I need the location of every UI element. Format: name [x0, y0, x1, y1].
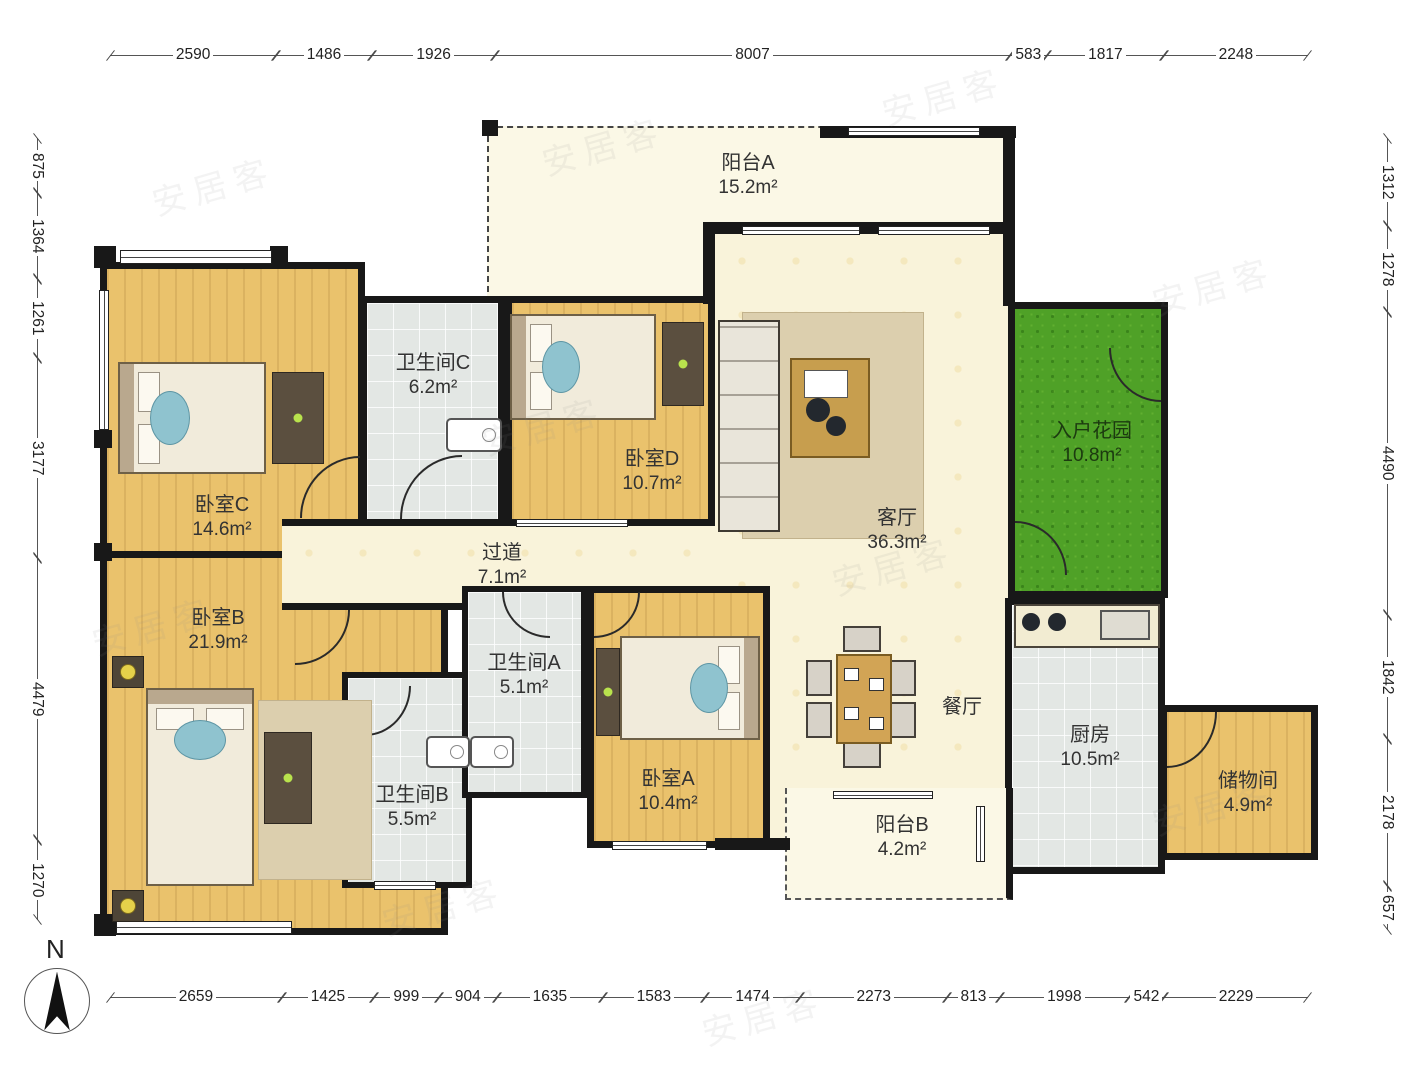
dimension-segment: 999 [374, 988, 439, 1006]
dimension-value: 4479 [28, 679, 46, 719]
watermark-text: 安居客 [146, 144, 281, 226]
room-name: 阳台B [875, 814, 928, 836]
dimension-segment: 1261 [28, 279, 46, 358]
dimension-segment: 8007 [495, 46, 1009, 64]
headboard [512, 316, 526, 418]
watermark-text: 安居客 [876, 54, 1011, 136]
dimension-value: 1635 [530, 988, 570, 1006]
dimension-segment: 1842 [1378, 615, 1396, 739]
dimension-segment: 583 [1010, 46, 1047, 64]
label-kitchen: 厨房 10.5m² [1060, 722, 1119, 773]
dimension-segment: 2229 [1164, 988, 1308, 1006]
label-hallway: 过道 7.1m² [478, 540, 527, 591]
compass-north-label: N [46, 934, 65, 965]
window [878, 226, 990, 235]
window [742, 226, 860, 235]
label-storage: 储物间 4.9m² [1218, 768, 1278, 819]
dimension-value: 3177 [28, 438, 46, 478]
window [374, 881, 436, 890]
dimension-segment: 4479 [28, 558, 46, 840]
room-area: 5.1m² [487, 676, 560, 701]
dimension-value: 1817 [1085, 46, 1125, 64]
window [833, 791, 933, 799]
wardrobe [596, 648, 620, 736]
dining-chair [843, 742, 881, 768]
wall-segment [1003, 126, 1015, 306]
kettle [806, 398, 830, 422]
room-area: 15.2m² [718, 176, 777, 201]
bed-bedroom-c [118, 362, 266, 474]
blanket [150, 391, 190, 445]
dimension-value: 1278 [1378, 249, 1396, 289]
room-name: 阳台A [721, 152, 774, 174]
wall-pillar [94, 430, 112, 448]
room-name: 卧室B [191, 607, 244, 629]
dimension-segment: 542 [1129, 988, 1164, 1006]
compass-arrow-icon [44, 972, 70, 1031]
dimension-segment: 1635 [497, 988, 603, 1006]
dimension-value: 904 [452, 988, 484, 1006]
room-name: 客厅 [877, 507, 917, 529]
label-balcony-a: 阳台A 15.2m² [718, 150, 777, 201]
dimension-value: 1842 [1378, 657, 1396, 697]
label-bedroom-c: 卧室C 14.6m² [192, 492, 251, 543]
wall-pillar [94, 543, 112, 561]
window [612, 841, 707, 850]
wall-segment [715, 838, 790, 850]
label-balcony-b: 阳台B 4.2m² [875, 812, 928, 863]
stove-burner [1022, 613, 1040, 631]
dimension-value: 2273 [854, 988, 894, 1006]
dimension-value: 999 [390, 988, 422, 1006]
room-name: 卫生间C [396, 352, 470, 374]
dimension-segment: 1926 [372, 46, 496, 64]
label-bathroom-b: 卫生间B 5.5m² [375, 782, 448, 833]
room-area: 36.3m² [867, 531, 926, 556]
headboard [120, 364, 134, 472]
dimension-value: 1474 [732, 988, 772, 1006]
room-area: 4.9m² [1218, 794, 1278, 819]
washing-machine [446, 418, 502, 452]
dimension-segment: 1583 [603, 988, 705, 1006]
room-name: 储物间 [1218, 770, 1278, 792]
dimension-line-top: 259014861926800758318172248 [110, 46, 1308, 64]
dimension-value: 1261 [28, 298, 46, 338]
room-area: 10.4m² [638, 792, 697, 817]
dining-chair [890, 660, 916, 696]
room-name: 卧室D [625, 448, 679, 470]
room-name: 餐厅 [942, 696, 982, 718]
bed-bedroom-a [620, 636, 760, 740]
compass-icon [24, 968, 90, 1034]
dimension-value: 1270 [28, 860, 46, 900]
dining-chair [806, 702, 832, 738]
plate [844, 668, 859, 681]
wardrobe [264, 732, 312, 824]
kitchen-sink [1100, 610, 1150, 640]
dimension-value: 1425 [308, 988, 348, 1006]
nightstand-lamp [112, 656, 144, 688]
dimension-value: 1926 [413, 46, 453, 64]
dimension-segment: 2248 [1164, 46, 1308, 64]
blanket [542, 341, 580, 393]
dimension-segment: 1270 [28, 840, 46, 920]
room-name: 入户花园 [1052, 420, 1132, 442]
dimension-segment: 1474 [705, 988, 800, 1006]
room-area: 4.2m² [875, 838, 928, 863]
label-bedroom-a: 卧室A 10.4m² [638, 766, 697, 817]
dimension-segment: 2590 [110, 46, 276, 64]
dimension-segment: 4490 [1378, 312, 1396, 614]
stove-burner [1048, 613, 1066, 631]
room-name: 过道 [482, 542, 522, 564]
tea-set [804, 370, 848, 398]
window [120, 250, 272, 264]
dining-chair [843, 626, 881, 652]
blanket [174, 720, 226, 760]
label-bedroom-b: 卧室B 21.9m² [188, 605, 247, 656]
label-dining: 餐厅 [942, 694, 982, 720]
dimension-value: 1998 [1044, 988, 1084, 1006]
plate [869, 717, 884, 730]
dimension-value: 542 [1130, 988, 1162, 1006]
plate [844, 707, 859, 720]
dimension-segment: 657 [1378, 886, 1396, 930]
dimension-segment: 813 [947, 988, 1000, 1006]
room-area: 6.2m² [396, 376, 470, 401]
sofa [718, 320, 780, 532]
bed-bedroom-b [146, 688, 254, 886]
label-living: 客厅 36.3m² [867, 505, 926, 556]
wardrobe [272, 372, 324, 464]
room-area: 10.7m² [622, 472, 681, 497]
dimension-value: 1312 [1378, 162, 1396, 202]
floor-plan-page: { "watermark": "安居客", "compass": { "nort… [0, 0, 1420, 1065]
wall-pillar [270, 246, 288, 264]
window [976, 806, 985, 862]
dimension-value: 2229 [1216, 988, 1256, 1006]
window [516, 519, 628, 527]
room-area: 10.8m² [1052, 444, 1132, 469]
dimension-value: 657 [1378, 892, 1396, 924]
room-name: 卫生间A [487, 652, 560, 674]
dimension-segment: 2659 [110, 988, 282, 1006]
room-area: 5.5m² [375, 808, 448, 833]
dimension-value: 583 [1012, 46, 1044, 64]
wall-segment [703, 222, 715, 304]
dimension-value: 813 [958, 988, 990, 1006]
dimension-value: 2659 [176, 988, 216, 1006]
bed-bedroom-d [510, 314, 656, 420]
dining-table [836, 654, 892, 744]
dimension-line-bottom: 2659142599990416351583147422738131998542… [110, 988, 1308, 1006]
dimension-line-right: 13121278449018422178657 [1378, 138, 1396, 930]
headboard [744, 638, 758, 738]
window [848, 127, 980, 136]
label-bathroom-a: 卫生间A 5.1m² [487, 650, 560, 701]
wardrobe [662, 322, 704, 406]
dimension-segment: 904 [439, 988, 497, 1006]
dimension-value: 1583 [634, 988, 674, 1006]
dining-chair [806, 660, 832, 696]
dimension-value: 2248 [1216, 46, 1256, 64]
room-area: 21.9m² [188, 631, 247, 656]
dimension-segment: 1364 [28, 193, 46, 279]
dimension-segment: 1486 [276, 46, 371, 64]
label-bedroom-d: 卧室D 10.7m² [622, 446, 681, 497]
plate [869, 678, 884, 691]
washbasin [470, 736, 514, 768]
room-area: 10.5m² [1060, 748, 1119, 773]
dimension-value: 4490 [1378, 443, 1396, 483]
dimension-value: 8007 [732, 46, 772, 64]
room-name: 卫生间B [375, 784, 448, 806]
dimension-value: 1486 [304, 46, 344, 64]
wall-pillar [482, 120, 498, 136]
kettle [826, 416, 846, 436]
wall-pillar [94, 246, 116, 268]
dimension-segment: 1425 [282, 988, 374, 1006]
label-garden: 入户花园 10.8m² [1052, 418, 1132, 469]
dimension-segment: 1278 [1378, 226, 1396, 312]
label-bathroom-c: 卫生间C 6.2m² [396, 350, 470, 401]
room-area: 7.1m² [478, 566, 527, 591]
dimension-value: 2178 [1378, 792, 1396, 832]
dimension-segment: 1312 [1378, 138, 1396, 226]
window [99, 290, 109, 430]
blanket [690, 663, 728, 713]
room-name: 厨房 [1070, 724, 1110, 746]
watermark-text: 安居客 [696, 974, 831, 1056]
washbasin [426, 736, 470, 768]
dimension-value: 1364 [28, 216, 46, 256]
room-name: 卧室C [195, 494, 249, 516]
dimension-line-left: 87513641261317744791270 [28, 138, 46, 920]
dimension-segment: 875 [28, 138, 46, 193]
dimension-segment: 1998 [1000, 988, 1129, 1006]
room-name: 卧室A [641, 768, 694, 790]
dimension-value: 2590 [173, 46, 213, 64]
nightstand-lamp [112, 890, 144, 922]
headboard [148, 690, 252, 704]
dimension-segment: 1817 [1047, 46, 1164, 64]
dimension-segment: 2273 [800, 988, 947, 1006]
window [116, 921, 292, 934]
dimension-segment: 3177 [28, 358, 46, 558]
dimension-segment: 2178 [1378, 739, 1396, 886]
room-area: 14.6m² [192, 518, 251, 543]
dimension-value: 875 [28, 150, 46, 182]
dining-chair [890, 702, 916, 738]
